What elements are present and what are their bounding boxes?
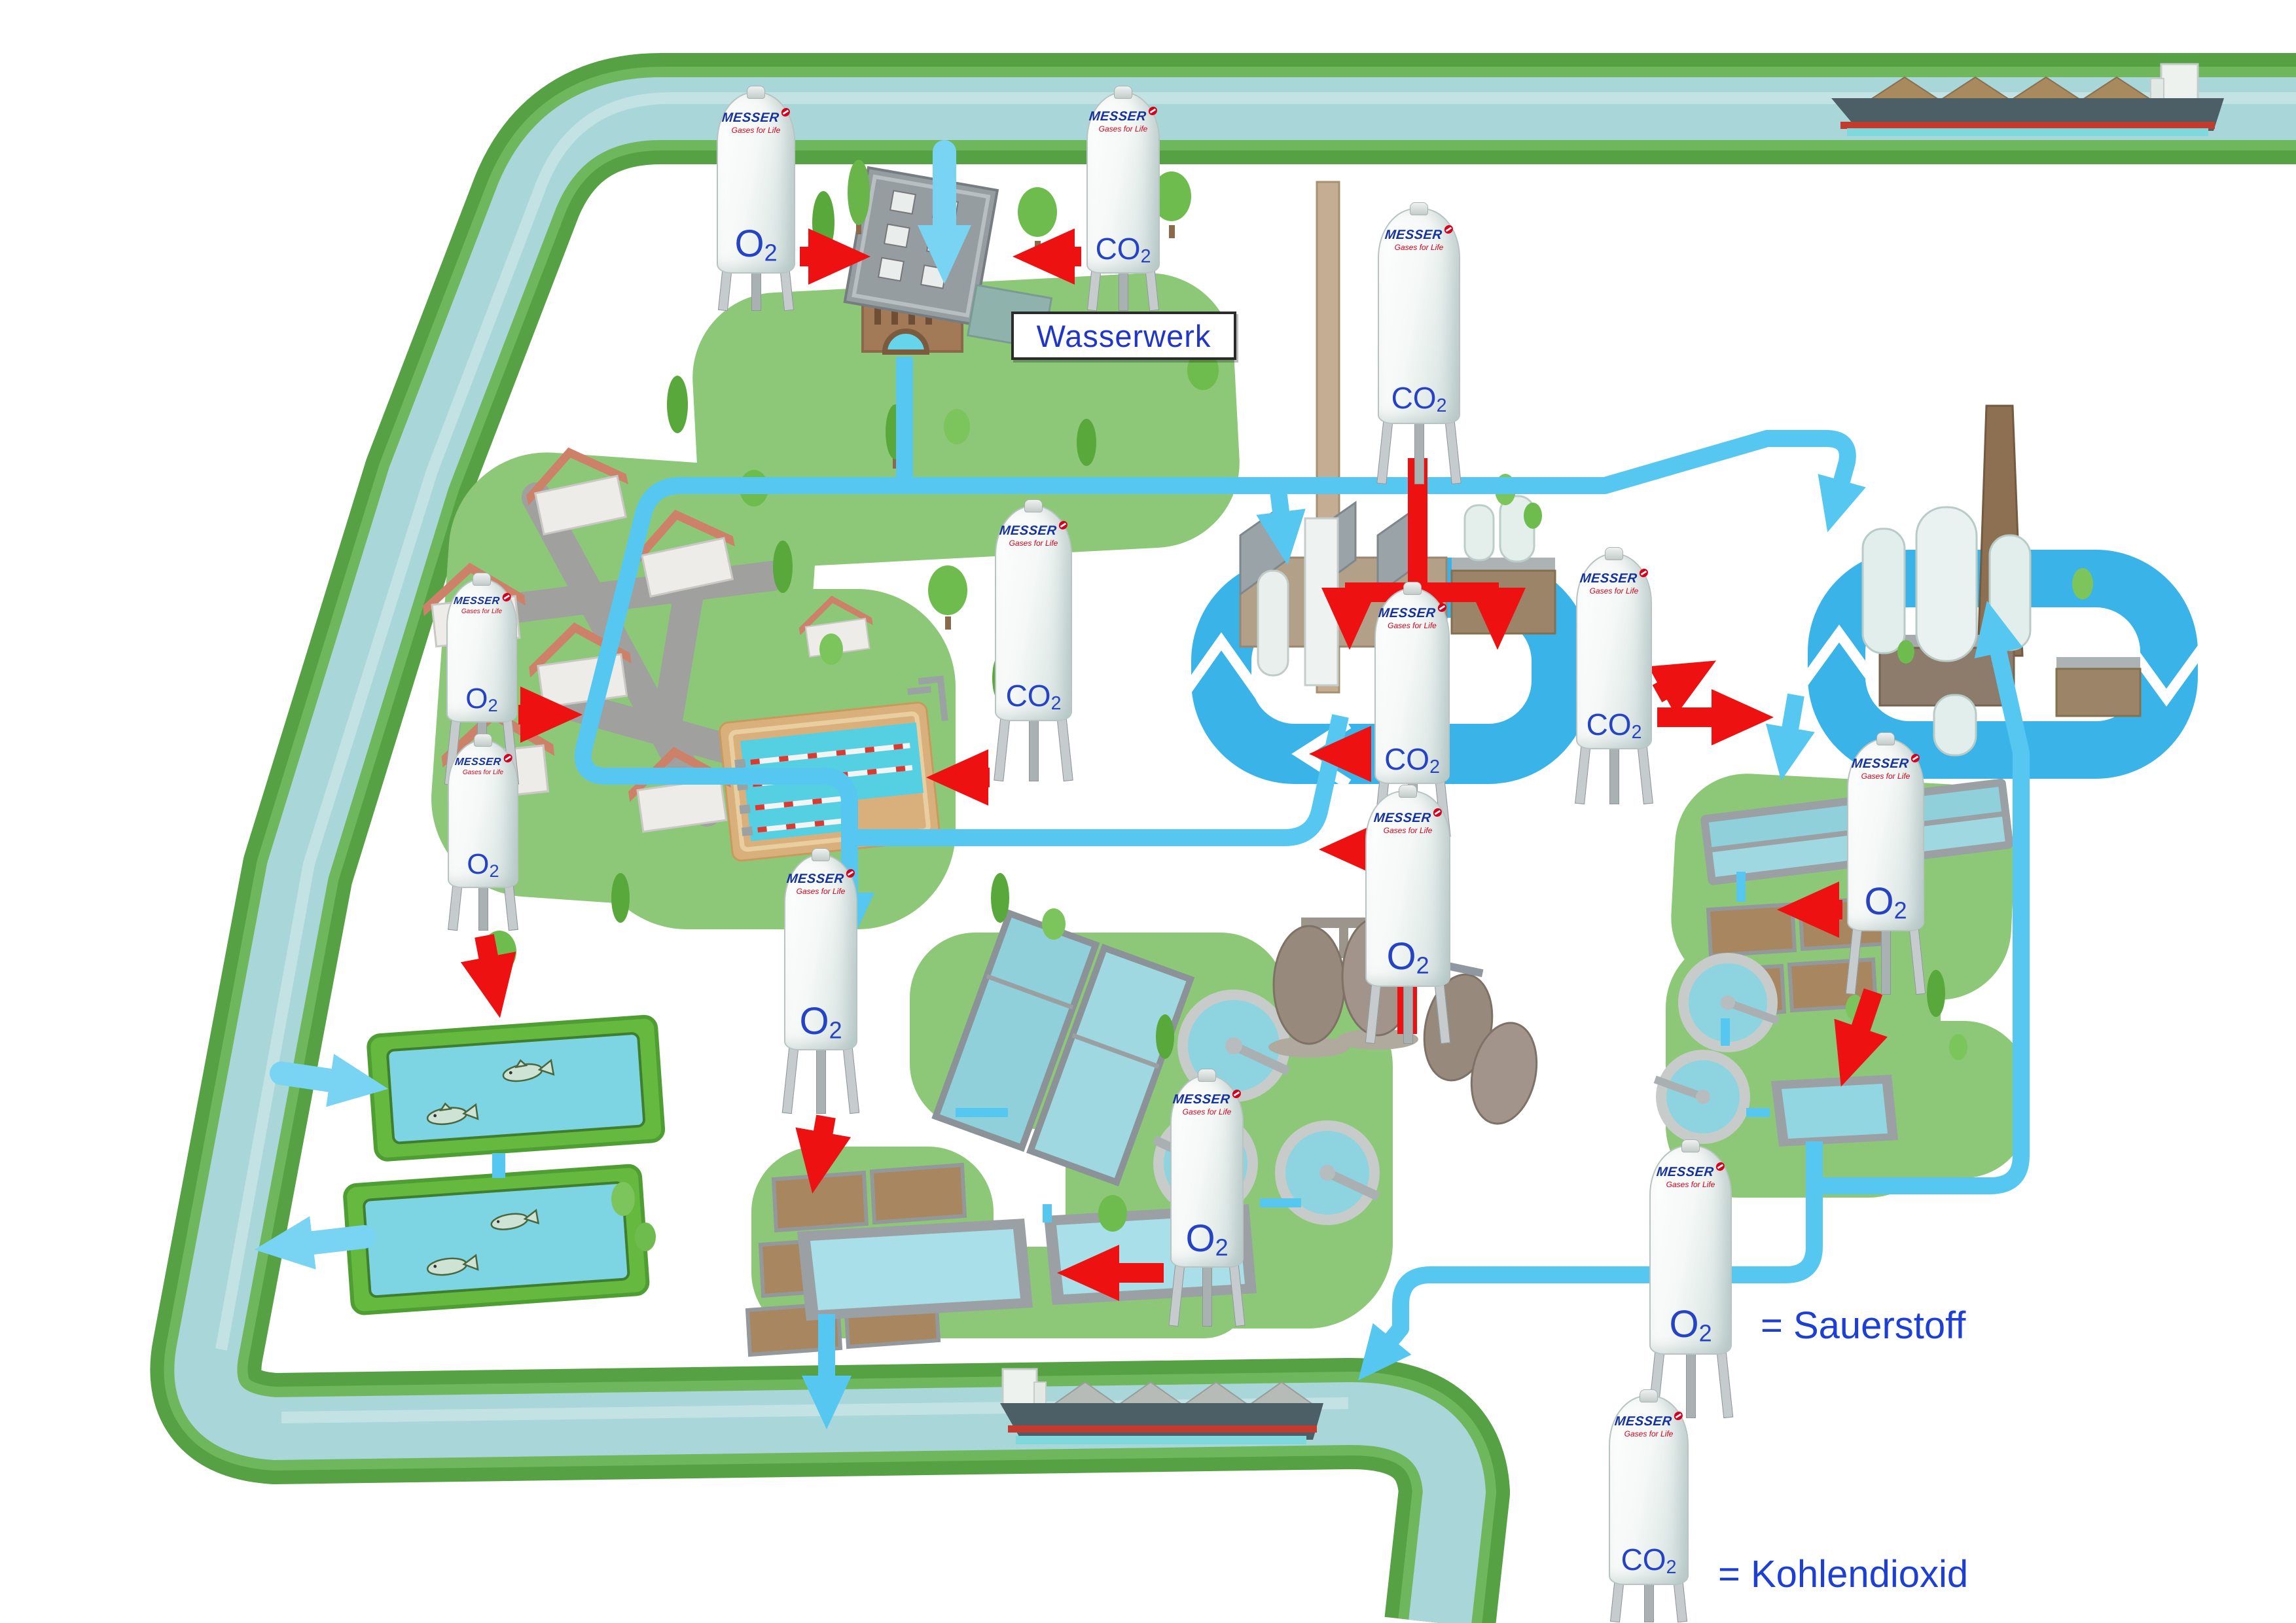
messer-logo-icon xyxy=(1674,1412,1683,1420)
gas-label: CO2 xyxy=(1621,1544,1677,1575)
messer-logo: MESSER xyxy=(1384,228,1454,241)
factory-small-tank xyxy=(1258,571,1288,675)
gas-label: O2 xyxy=(1386,938,1429,976)
co2-tank-legend: MESSER Gases for Life CO2 xyxy=(1609,1395,1689,1621)
pipe-branch-factory xyxy=(1278,486,1282,517)
tree-icon xyxy=(928,565,967,630)
arrow-o2-to-fishpond xyxy=(484,936,490,963)
messer-logo-icon xyxy=(1716,1162,1725,1171)
co2-tank-right-loop: MESSER Gases for Life CO2 xyxy=(1576,553,1652,803)
tank-valve xyxy=(812,848,830,861)
arrow-co2-to-loop-diagonal xyxy=(1657,688,1668,694)
arrow-o2-to-central-beds xyxy=(822,1116,826,1139)
tank-valve xyxy=(1114,86,1132,99)
gas-label: O2 xyxy=(1864,883,1907,921)
tank-valve xyxy=(1410,202,1428,215)
gas-label: O2 xyxy=(734,225,777,263)
messer-logo-icon xyxy=(1444,225,1454,234)
tank-valve xyxy=(1403,582,1422,595)
tree-icon xyxy=(773,541,793,593)
tank-valve xyxy=(1640,1389,1658,1402)
gas-label: CO2 xyxy=(1006,681,1062,711)
gas-label: O2 xyxy=(1185,1220,1228,1258)
messer-logo: MESSER xyxy=(1656,1166,1725,1179)
messer-logo-icon xyxy=(1437,603,1446,612)
gas-label: CO2 xyxy=(1096,234,1151,264)
o2-tank-village-lower: MESSER Gases for Life O2 xyxy=(448,740,518,929)
tank-valve xyxy=(1681,1139,1700,1152)
legend-co2-text: = Kohlendioxid xyxy=(1718,1552,1968,1596)
messer-logo-icon xyxy=(781,108,791,116)
co2-tank-waterworks: MESSER Gases for Life CO2 xyxy=(1086,92,1160,310)
tree-icon xyxy=(1927,970,1945,1017)
arrow-o2-to-right-pond xyxy=(1859,991,1873,1034)
co2-tank-factory: MESSER Gases for Life CO2 xyxy=(1378,208,1460,483)
o2-tank-central-plant-left: MESSER Gases for Life O2 xyxy=(784,854,857,1113)
messer-logo-icon xyxy=(1433,808,1443,817)
tree-icon xyxy=(1098,1195,1127,1232)
messer-logo-icon xyxy=(503,754,512,762)
tree-icon xyxy=(1042,908,1066,940)
tree-icon xyxy=(1018,187,1057,254)
legend-o2-text: = Sauerstoff xyxy=(1761,1304,1965,1347)
o2-tank-right-plant: MESSER Gases for Life O2 xyxy=(1847,738,1924,993)
waterworks-sign-label: Wasserwerk xyxy=(1037,318,1211,354)
tree-icon xyxy=(1156,1014,1174,1059)
tree-icon xyxy=(1897,640,1914,664)
messer-logo-icon xyxy=(1911,754,1920,762)
tank-valve xyxy=(1024,499,1043,512)
diagram-canvas: MESSER Gases for Life O2 MESSER Gases fo… xyxy=(0,0,2296,1623)
tank-valve xyxy=(747,86,765,99)
tree-icon xyxy=(819,633,843,665)
tank-valve xyxy=(1399,785,1417,798)
messer-logo: MESSER xyxy=(1579,572,1649,585)
tree-icon xyxy=(667,376,688,433)
tank-valve xyxy=(474,734,492,747)
messer-logo-icon xyxy=(1149,107,1158,115)
tank-valve xyxy=(1876,732,1895,745)
o2-tank-waterworks: MESSER Gases for Life O2 xyxy=(717,92,795,310)
messer-logo: MESSER xyxy=(786,872,855,885)
messer-logo: MESSER xyxy=(999,524,1068,537)
messer-logo-icon xyxy=(1640,569,1649,577)
tree-icon xyxy=(611,1182,635,1216)
messer-logo: MESSER xyxy=(454,757,512,768)
gas-label: CO2 xyxy=(1391,383,1447,413)
messer-logo-icon xyxy=(1059,521,1068,529)
o2-tank-mid-factory: MESSER Gases for Life O2 xyxy=(1365,791,1450,1043)
tree-icon xyxy=(812,191,834,263)
messer-logo: MESSER xyxy=(453,596,511,607)
messer-logo-icon xyxy=(846,869,855,878)
messer-logo: MESSER xyxy=(1172,1093,1242,1106)
messer-logo: MESSER xyxy=(1614,1415,1683,1428)
tank-valve xyxy=(1605,547,1623,560)
gas-label: O2 xyxy=(799,1003,842,1041)
tree-icon xyxy=(635,1222,656,1251)
o2-tank-central-plant-right: MESSER Gases for Life O2 xyxy=(1170,1075,1244,1325)
gas-label: O2 xyxy=(465,685,497,713)
gas-label: O2 xyxy=(467,850,499,879)
tree-icon xyxy=(1077,419,1096,466)
tree-icon xyxy=(2072,568,2093,599)
fish-pond-upper xyxy=(368,1016,664,1160)
barge-cabin xyxy=(2161,64,2198,101)
tree-icon xyxy=(1949,1034,1967,1060)
gas-label: CO2 xyxy=(1384,744,1440,774)
messer-logo: MESSER xyxy=(1378,607,1447,620)
tank-valve xyxy=(473,573,491,586)
factory-white-column xyxy=(1305,518,1338,685)
tree-icon xyxy=(944,409,970,444)
waterworks-sign: Wasserwerk xyxy=(1011,312,1236,360)
barge-cabin xyxy=(1003,1369,1037,1407)
fish-pond-lower xyxy=(344,1166,649,1314)
gas-label: CO2 xyxy=(1587,709,1642,740)
o2-tank-legend: MESSER Gases for Life O2 xyxy=(1649,1145,1732,1417)
arrow-river-to-fishpond xyxy=(281,1073,335,1081)
gas-label: O2 xyxy=(1669,1306,1712,1344)
waterworks-outflow-arch xyxy=(885,331,927,352)
messer-logo: MESSER xyxy=(1373,811,1443,825)
tree-icon xyxy=(991,873,1009,923)
tree-icon xyxy=(1524,503,1542,529)
tree-icon xyxy=(611,873,630,923)
pipe-loop-to-right-plant xyxy=(1789,695,1796,733)
plant2-pond xyxy=(1771,1075,1898,1147)
tank-valve xyxy=(1198,1069,1216,1082)
messer-logo: MESSER xyxy=(1851,757,1920,770)
co2-tank-pool: MESSER Gases for Life CO2 xyxy=(995,505,1072,780)
messer-logo-icon xyxy=(501,593,511,601)
messer-logo: MESSER xyxy=(1088,110,1158,123)
arrow-fishpond-to-river xyxy=(308,1237,364,1243)
messer-logo: MESSER xyxy=(721,111,791,124)
messer-logo-icon xyxy=(1232,1090,1242,1098)
